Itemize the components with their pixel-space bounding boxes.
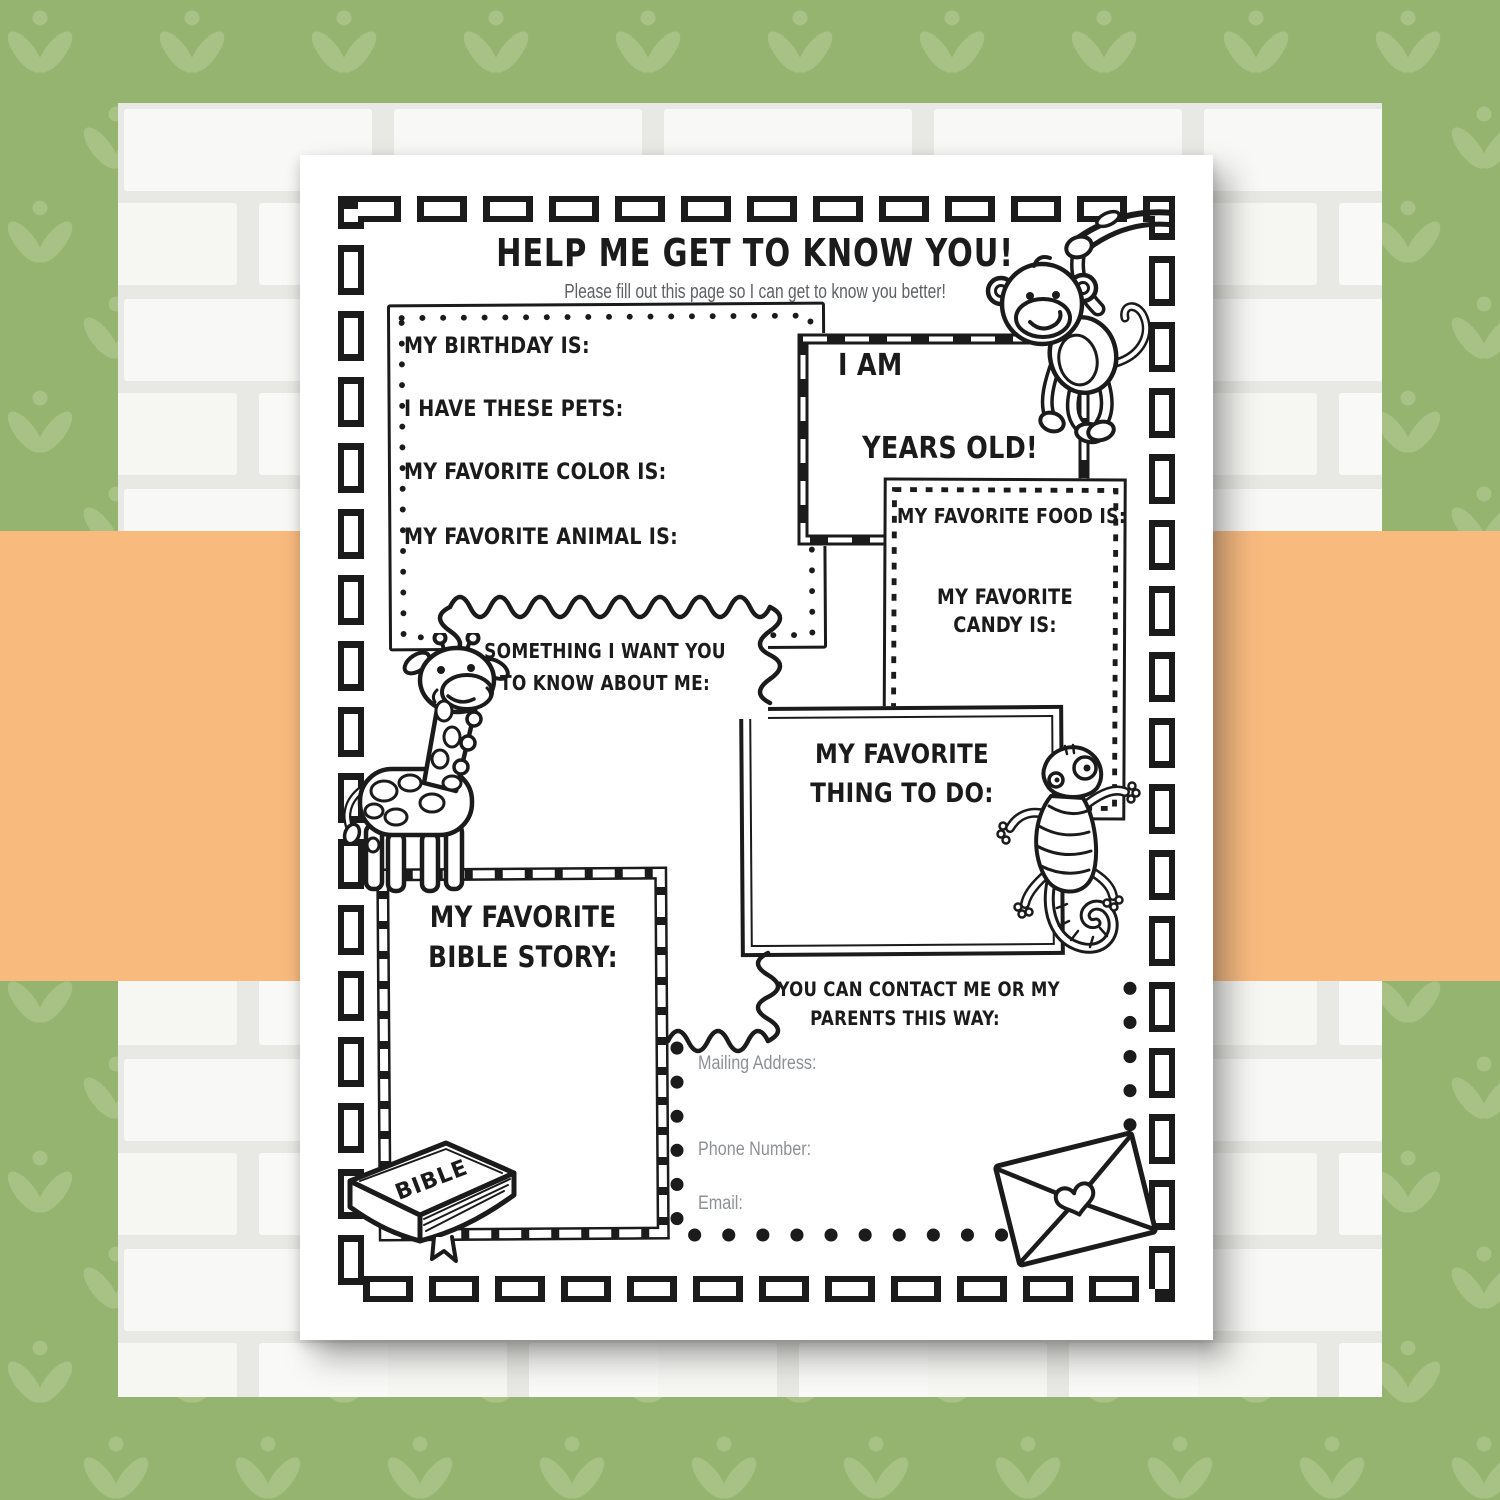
bible-line-2: BIBLE STORY:	[412, 937, 635, 977]
thing-line-2: THING TO DO:	[770, 774, 1034, 813]
product-mockup: BIBLE HELP ME GET TO KNOW YOU! Please fi…	[0, 0, 1500, 1500]
contact-heading-1: YOU CAN CONTACT ME OR MY	[778, 975, 1033, 1004]
something-line-2: TO KNOW ABOUT ME:	[465, 667, 746, 699]
field-favorite-animal: MY FAVORITE ANIMAL IS:	[404, 524, 678, 550]
field-mailing-address: Mailing Address:	[698, 1053, 816, 1075]
something-heading: SOMETHING I WANT YOU TO KNOW ABOUT ME:	[465, 635, 746, 699]
field-favorite-candy: MY FAVORITE CANDY IS:	[907, 583, 1103, 640]
field-favorite-food: MY FAVORITE FOOD IS:	[897, 504, 1126, 528]
thing-line-1: MY FAVORITE	[770, 735, 1034, 774]
contact-heading: YOU CAN CONTACT ME OR MY PARENTS THIS WA…	[778, 975, 1033, 1034]
worksheet-subtitle: Please fill out this page so I can get t…	[498, 281, 1013, 304]
field-pets: I HAVE THESE PETS:	[404, 396, 624, 422]
thing-to-do-heading: MY FAVORITE THING TO DO:	[770, 735, 1034, 813]
bible-story-heading: MY FAVORITE BIBLE STORY:	[412, 897, 635, 977]
bible-book-icon: BIBLE	[336, 1127, 531, 1282]
bible-line-1: MY FAVORITE	[412, 897, 635, 937]
field-phone-number: Phone Number:	[698, 1139, 811, 1161]
age-line-1: I AM	[838, 348, 903, 383]
worksheet-title: HELP ME GET TO KNOW YOU!	[491, 231, 1019, 275]
contact-heading-2: PARENTS THIS WAY:	[778, 1004, 1033, 1033]
field-birthday: MY BIRTHDAY IS:	[404, 333, 590, 359]
field-favorite-color: MY FAVORITE COLOR IS:	[404, 459, 667, 485]
age-line-2: YEARS OLD!	[835, 431, 1065, 466]
worksheet-paper: BIBLE HELP ME GET TO KNOW YOU! Please fi…	[300, 155, 1213, 1340]
field-email: Email:	[698, 1193, 743, 1215]
envelope-icon	[988, 1123, 1163, 1278]
something-line-1: SOMETHING I WANT YOU	[465, 635, 746, 667]
